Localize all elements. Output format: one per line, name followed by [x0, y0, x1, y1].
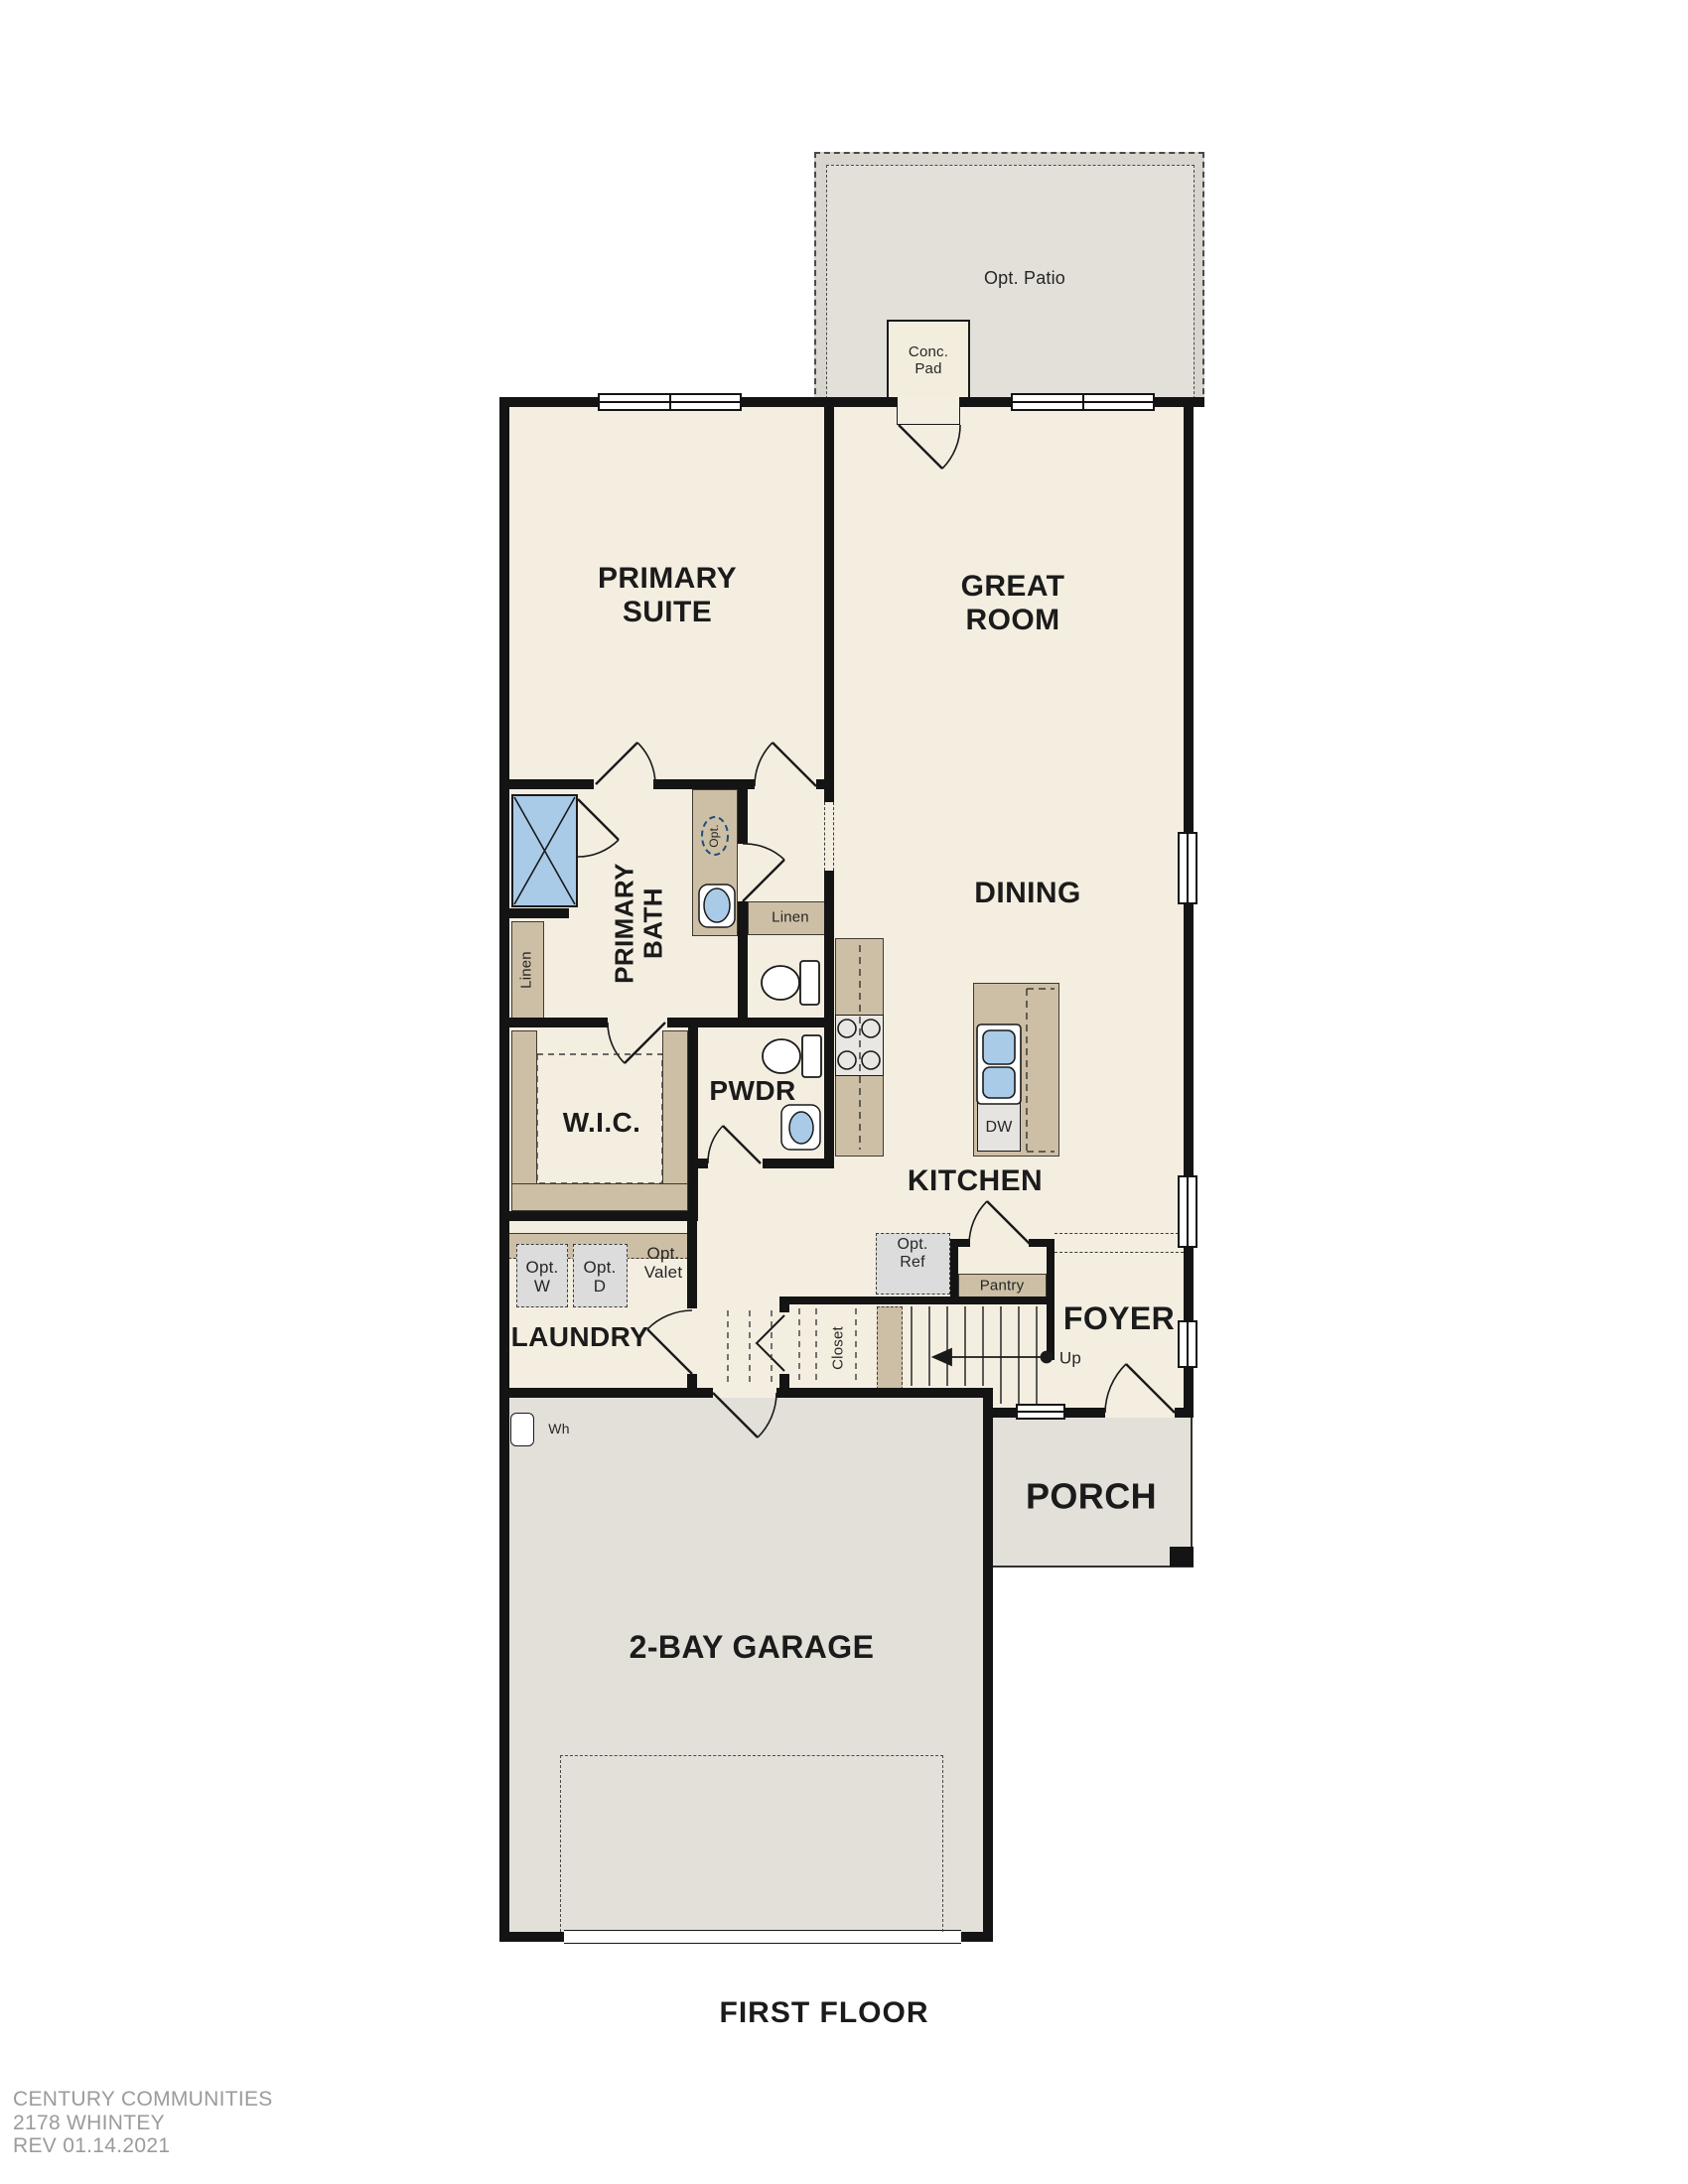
label-opt-washer: Opt. W	[518, 1258, 566, 1296]
wall-garage-right	[983, 1393, 993, 1942]
wall-pantry-stub-right	[1029, 1239, 1055, 1247]
label-linen-bath: Linen	[519, 951, 536, 989]
wall-pantry-stub-left	[950, 1239, 970, 1247]
floor-plan: PRIMARY SUITE GREAT ROOM DINING PRIMARY …	[0, 0, 1688, 2184]
label-opt-dryer: Opt. D	[576, 1258, 624, 1296]
opening-stair-closet	[779, 1312, 789, 1374]
label-pwdr: PWDR	[709, 1075, 795, 1107]
window-divider	[1082, 394, 1084, 410]
wall-pantry-right	[1047, 1241, 1055, 1360]
opening-suite-bath	[594, 779, 653, 789]
porch-post	[1170, 1547, 1194, 1567]
wall-bath-hall	[738, 789, 748, 1023]
label-wic: W.I.C.	[563, 1107, 641, 1139]
window-foyer-side	[1178, 1320, 1197, 1368]
wall-pantry-left	[950, 1241, 958, 1300]
dining-opt-window-dashed	[824, 802, 834, 871]
wall-wic-bottom	[499, 1211, 698, 1221]
window-divider	[669, 394, 671, 410]
label-porch: PORCH	[1026, 1477, 1157, 1518]
opening-garage-entry	[713, 1388, 776, 1398]
wic-shelf-bottom	[511, 1183, 688, 1211]
window-glass-line	[1187, 833, 1189, 903]
label-closet: Closet	[831, 1326, 848, 1370]
label-linen-hall: Linen	[772, 910, 809, 927]
opening-suite-hall	[755, 779, 816, 789]
patio-door-threshold	[897, 397, 960, 425]
label-garage: 2-BAY GARAGE	[630, 1629, 875, 1665]
label-primary-bath: PRIMARY BATH	[611, 849, 669, 998]
label-dining: DINING	[974, 877, 1080, 910]
label-up: Up	[1059, 1348, 1081, 1367]
opening-bath-toilet	[738, 844, 748, 901]
label-opt-valet: Opt. Valet	[635, 1244, 691, 1282]
label-opt-ref: Opt. Ref	[888, 1236, 937, 1272]
opening-wic	[608, 1018, 667, 1027]
title-block: CENTURY COMMUNITIES 2178 WHINTEY REV 01.…	[13, 2088, 273, 2158]
plan-number: 2178 WHINTEY	[13, 2112, 273, 2135]
stair-closet-shelf	[877, 1306, 903, 1390]
label-conc-pad: Conc. Pad	[898, 344, 959, 378]
window-dining	[1178, 832, 1197, 904]
window-glass-line	[1187, 1321, 1189, 1367]
bath-vanity	[692, 789, 738, 936]
water-heater	[510, 1413, 534, 1446]
label-laundry: LAUNDRY	[511, 1321, 649, 1353]
garage-apron-dashed	[560, 1755, 943, 1932]
label-dishwasher: DW	[985, 1119, 1012, 1137]
wic-shelf-left	[511, 1030, 537, 1185]
window-great-room	[1011, 393, 1155, 411]
label-opt-patio: Opt. Patio	[984, 268, 1065, 288]
label-pantry: Pantry	[980, 1279, 1025, 1296]
label-kitchen: KITCHEN	[908, 1164, 1043, 1198]
label-primary-suite: PRIMARY SUITE	[568, 562, 767, 629]
label-foyer: FOYER	[1063, 1300, 1175, 1336]
porch-edge-right	[1191, 1418, 1193, 1567]
window-glass-line	[1017, 1411, 1064, 1413]
opening-laundry	[687, 1308, 697, 1374]
wall-shower-stub	[509, 908, 569, 918]
wic-shelf-right	[662, 1030, 688, 1185]
label-opt-vanity: Opt.	[708, 824, 722, 847]
window-glass-line	[1187, 1176, 1189, 1247]
label-water-heater: Wh	[548, 1422, 569, 1437]
porch-edge-bottom	[993, 1566, 1194, 1568]
opening-pwdr	[708, 1159, 763, 1168]
shower	[511, 794, 578, 907]
wall-suite-greatroom	[824, 397, 834, 789]
window-stairwell-front	[1016, 1404, 1065, 1420]
wall-stair-top	[789, 1297, 1055, 1304]
label-first-floor: FIRST FLOOR	[720, 1996, 929, 2030]
label-great-room: GREAT ROOM	[928, 570, 1097, 637]
wall-right	[1184, 397, 1194, 1418]
builder-name: CENTURY COMMUNITIES	[13, 2088, 273, 2112]
window-kitchen	[1178, 1175, 1197, 1248]
window-primary-suite	[598, 393, 742, 411]
foyer-soffit-dashed	[1055, 1233, 1184, 1253]
wall-left	[499, 397, 509, 1942]
revision-date: REV 01.14.2021	[13, 2134, 273, 2158]
opening-front-door	[1105, 1408, 1175, 1418]
range-stove	[835, 1015, 884, 1076]
garage-door-line	[564, 1930, 961, 1944]
wall-wic-pwdr	[688, 1027, 698, 1221]
